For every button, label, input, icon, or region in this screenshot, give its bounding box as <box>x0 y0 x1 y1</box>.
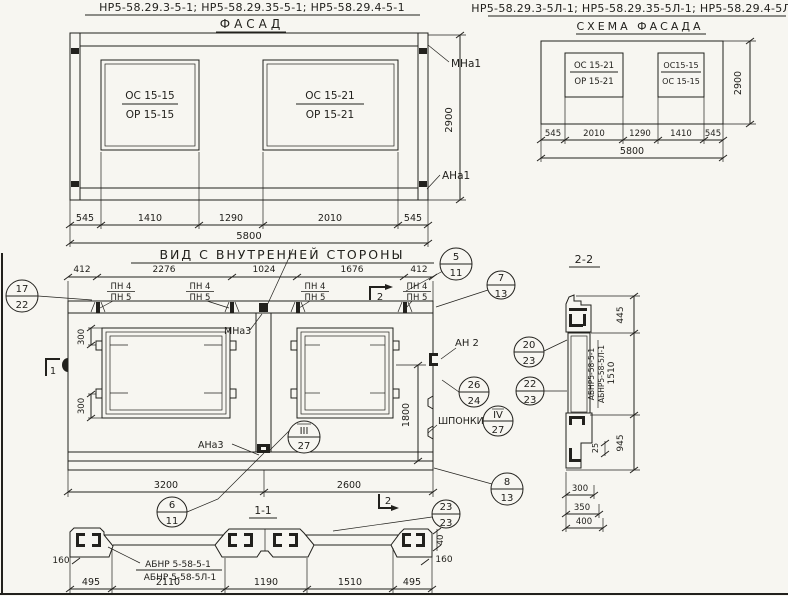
s22-dim-350: 350 <box>574 503 590 513</box>
inner-dim-top-1: 412 <box>73 265 90 275</box>
s11-dim-4: 1510 <box>338 577 362 588</box>
bubble-26-24-top: 26 <box>468 380 481 391</box>
bubble-8-13-bottom: 13 <box>501 493 514 504</box>
abnr-label-top: АБНР 5-58-5-1 <box>145 560 211 570</box>
facade-panel-outline <box>70 33 428 200</box>
facade-window-right-mark-bottom: ОР 15-21 <box>306 109 354 121</box>
dim-160-right: 160 <box>435 555 452 565</box>
bubble-IV-27-top: IV <box>493 410 503 421</box>
section-1-1-title: 1-1 <box>254 505 271 517</box>
hinge-offset-dims: 300 300 <box>77 325 102 421</box>
scheme-bottom-dims: 545 2010 1290 1410 545 5800 <box>537 97 727 162</box>
dim-25: 25 <box>591 443 600 453</box>
dim-1800: 1800 <box>401 403 412 427</box>
facade-window-right-mark-top: ОС 15-21 <box>305 90 354 102</box>
bubble-7-13: 7 13 <box>487 271 515 300</box>
facade-view: НР5-58.29.3-5-1; НР5-58.29.35-5-1; НР5-5… <box>66 1 481 247</box>
facade-window-left-mark-bottom: ОР 15-15 <box>126 109 174 121</box>
bubble-22-23-bottom: 23 <box>524 395 537 406</box>
s11-dim-3: 1190 <box>254 577 278 588</box>
bubble-26-24: 26 24 <box>459 377 489 407</box>
facade-window-right: ОС 15-21 ОР 15-21 <box>263 60 398 150</box>
scheme-height-dim: 2900 <box>723 38 756 127</box>
bubble-17-22-bottom: 22 <box>16 300 29 311</box>
scheme-window-left: ОС 15-21 ОР 15-21 <box>565 53 623 97</box>
bubble-5-11-top: 5 <box>453 252 459 263</box>
inner-dim-top-3: 1024 <box>253 265 276 275</box>
bubble-III-27: III 27 <box>288 421 320 453</box>
facade-scheme-view: НР5-58.29.3-5Л-1; НР5-58.29.35-5Л-1; НР5… <box>471 2 788 162</box>
an2-label: АН 2 <box>455 338 479 349</box>
s22-dim-300: 300 <box>572 484 588 494</box>
dim-160-left: 160 <box>52 556 69 566</box>
dim-3200: 3200 <box>154 480 178 491</box>
shponki-label: ШПОНКИ <box>438 416 484 427</box>
pn4-label-3: ПН 4 <box>305 282 326 292</box>
pn4-label-2: ПН 4 <box>190 282 211 292</box>
bubble-20-23-bottom: 23 <box>523 356 536 367</box>
facade-codes-title: НР5-58.29.3-5-1; НР5-58.29.35-5-1; НР5-5… <box>99 1 405 14</box>
scheme-codes-title: НР5-58.29.3-5Л-1; НР5-58.29.35-5Л-1; НР5… <box>471 2 788 15</box>
bubble-22-23: 22 23 <box>516 377 544 406</box>
bubble-7-13-top: 7 <box>498 273 504 284</box>
section-2-marker-bottom: 2 <box>379 494 399 511</box>
bubble-23-23-bottom: 23 <box>440 518 453 529</box>
bubble-III-27-bottom: 27 <box>298 441 311 452</box>
bubble-26-24-bottom: 24 <box>468 396 481 407</box>
section-1-1-view: 160 160 40 АБНР 5-58-5-1 АБНР 5-58-5Л-1 … <box>52 528 452 593</box>
s22-bottom-dims: 300 350 400 <box>562 472 607 532</box>
facade-anchor-label-bottom: АНа1 <box>442 170 470 182</box>
drawing-sheet: НР5-58.29.3-5-1; НР5-58.29.35-5-1; НР5-5… <box>0 0 788 596</box>
scheme-title: СХЕМА ФАСАДА <box>577 20 704 33</box>
facade-dim-1: 545 <box>76 213 94 224</box>
ana3-label: АНа3 <box>198 440 224 451</box>
s22-dim-400: 400 <box>576 517 592 527</box>
scheme-window-left-mark-bottom: ОР 15-21 <box>574 77 613 87</box>
scheme-window-right: ОС15-15 ОС 15-15 <box>658 53 704 97</box>
facade-anchor-label-top: МНа1 <box>451 58 481 70</box>
bubble-20-23: 20 23 <box>514 337 544 367</box>
scheme-dim-2900: 2900 <box>733 71 744 95</box>
scheme-dim-2: 2010 <box>583 129 605 139</box>
scheme-window-right-mark-top: ОС15-15 <box>663 61 698 70</box>
section-1-marker: 1 <box>46 359 60 377</box>
scheme-dim-3: 1290 <box>629 129 651 139</box>
scheme-dim-1: 545 <box>545 129 561 139</box>
bubble-20-23-top: 20 <box>523 340 536 351</box>
dim-300-top: 300 <box>77 329 87 345</box>
bubble-6-11-top: 6 <box>169 500 175 511</box>
facade-dim-4: 2010 <box>318 213 342 224</box>
section-2-2-view: 2-2 АБНР5-58-5-1 АБНР5-58-5Л-1 <box>562 253 640 532</box>
section-2-marker-top: 2 <box>370 284 393 303</box>
scheme-window-left-mark-top: ОС 15-21 <box>574 61 614 71</box>
left-edge-anchor <box>62 358 68 372</box>
facade-dim-2: 1410 <box>138 213 162 224</box>
s22-abnr-bottom: АБНР5-58-5Л-1 <box>597 345 606 403</box>
bubble-5-11-bottom: 11 <box>450 268 463 279</box>
scheme-dim-total: 5800 <box>620 146 644 157</box>
inner-view-title: ВИД С ВНУТРЕННЕЙ СТОРОНЫ <box>159 247 404 262</box>
s11-dim-2: 2110 <box>156 577 180 588</box>
inner-view: ВИД С ВНУТРЕННЕЙ СТОРОНЫ 412 2276 1024 1… <box>46 247 484 518</box>
facade-dim-5: 545 <box>404 213 422 224</box>
section-2-marker-bottom-label: 2 <box>385 496 391 507</box>
dim-2600: 2600 <box>337 480 361 491</box>
dim-1510: 1510 <box>607 361 617 384</box>
inner-dim-top-2: 2276 <box>153 265 176 275</box>
dim-300-bottom: 300 <box>77 398 87 414</box>
scheme-window-right-mark-bottom: ОС 15-15 <box>662 77 700 86</box>
top-band-anchors <box>91 302 412 313</box>
facade-dim-total: 5800 <box>236 231 261 242</box>
middle-pier <box>256 303 271 453</box>
position-bubbles: 17 22 5 11 7 13 20 23 26 24 22 23 <box>6 248 567 531</box>
s22-abnr-top: АБНР5-58-5-1 <box>587 348 596 401</box>
bubble-IV-27: IV 27 <box>483 406 513 436</box>
bubble-7-13-bottom: 13 <box>495 289 508 300</box>
pn4-label-1: ПН 4 <box>111 282 132 292</box>
dim-445: 445 <box>616 306 626 323</box>
inner-dim-top-5: 412 <box>410 265 427 275</box>
facade-window-left: ОС 15-15 ОР 15-15 <box>101 60 199 150</box>
section-1-marker-label: 1 <box>50 366 56 377</box>
inner-window-right <box>291 328 399 418</box>
scheme-dim-4: 1410 <box>670 129 692 139</box>
bubble-17-22: 17 22 <box>6 280 38 312</box>
bubble-IV-27-bottom: 27 <box>492 425 505 436</box>
bubble-6-11: 6 11 <box>157 497 187 527</box>
inner-bottom-dims: 3200 2600 <box>64 470 437 497</box>
bubble-23-23: 23 23 <box>432 500 460 529</box>
pn4-label-4: ПН 4 <box>407 282 428 292</box>
inner-window-left <box>96 328 236 418</box>
s11-dim-1: 495 <box>82 577 100 588</box>
inner-dim-top-4: 1676 <box>341 265 364 275</box>
dim-1800-group: 1800 <box>396 362 426 464</box>
s11-dim-5: 495 <box>403 577 421 588</box>
bubble-III-27-top: III <box>300 426 309 437</box>
bubble-23-23-top: 23 <box>440 502 453 513</box>
facade-corner-anchors <box>71 48 427 187</box>
bubble-6-11-bottom: 11 <box>166 516 179 527</box>
shear-key-1 <box>428 396 433 409</box>
facade-dim-3: 1290 <box>219 213 243 224</box>
facade-window-left-mark-top: ОС 15-15 <box>125 90 174 102</box>
section-2-2-title: 2-2 <box>575 253 594 266</box>
dim-945: 945 <box>616 434 626 451</box>
bubble-8-13-top: 8 <box>504 477 510 488</box>
bubble-5-11: 5 11 <box>440 248 472 280</box>
dim-40: 40 <box>436 535 446 546</box>
bubble-22-23-top: 22 <box>524 379 537 390</box>
bubble-17-22-top: 17 <box>16 284 29 295</box>
facade-dim-2900: 2900 <box>444 107 455 132</box>
bubble-8-13: 8 13 <box>491 473 523 505</box>
engineering-drawing: НР5-58.29.3-5-1; НР5-58.29.35-5-1; НР5-5… <box>0 0 788 596</box>
mna3-label: МНа3 <box>224 326 251 337</box>
rib-block-right <box>391 529 432 557</box>
facade-title: ФАСАД <box>220 17 285 31</box>
scheme-dim-5: 545 <box>705 129 721 139</box>
